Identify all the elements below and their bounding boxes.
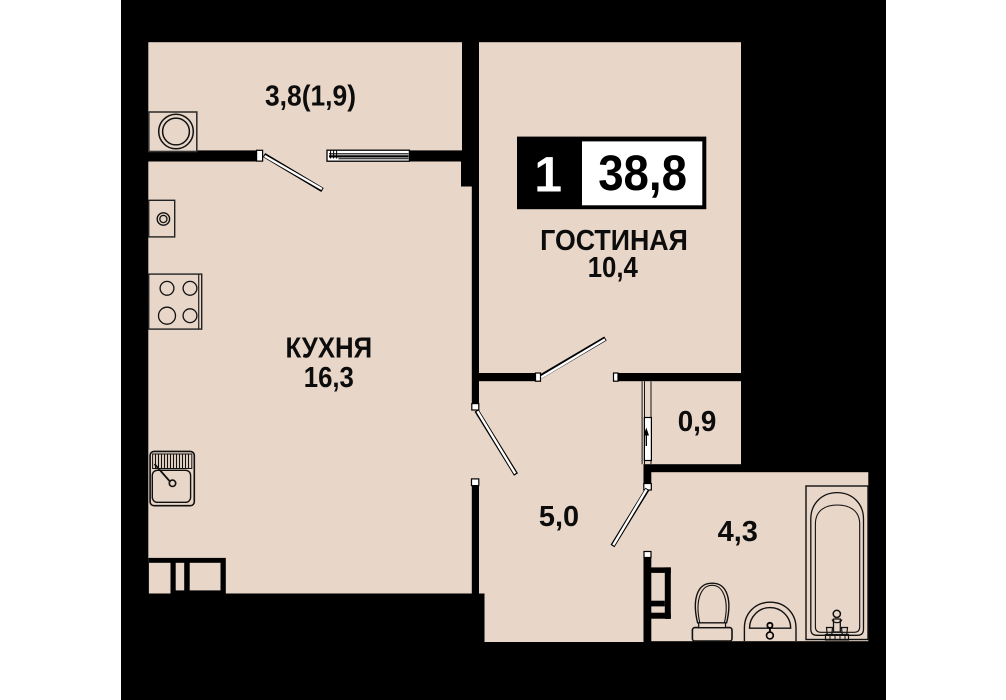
svg-text:5,0: 5,0 xyxy=(539,501,579,533)
svg-text:16,3: 16,3 xyxy=(304,362,354,394)
svg-text:0,9: 0,9 xyxy=(678,406,717,438)
svg-text:38,8: 38,8 xyxy=(598,145,687,201)
svg-text:3,8(1,9): 3,8(1,9) xyxy=(265,80,356,112)
svg-text:КУХНЯ: КУХНЯ xyxy=(285,332,372,364)
svg-text:1: 1 xyxy=(534,147,562,203)
svg-text:4,3: 4,3 xyxy=(718,516,758,548)
svg-text:10,4: 10,4 xyxy=(588,252,638,284)
